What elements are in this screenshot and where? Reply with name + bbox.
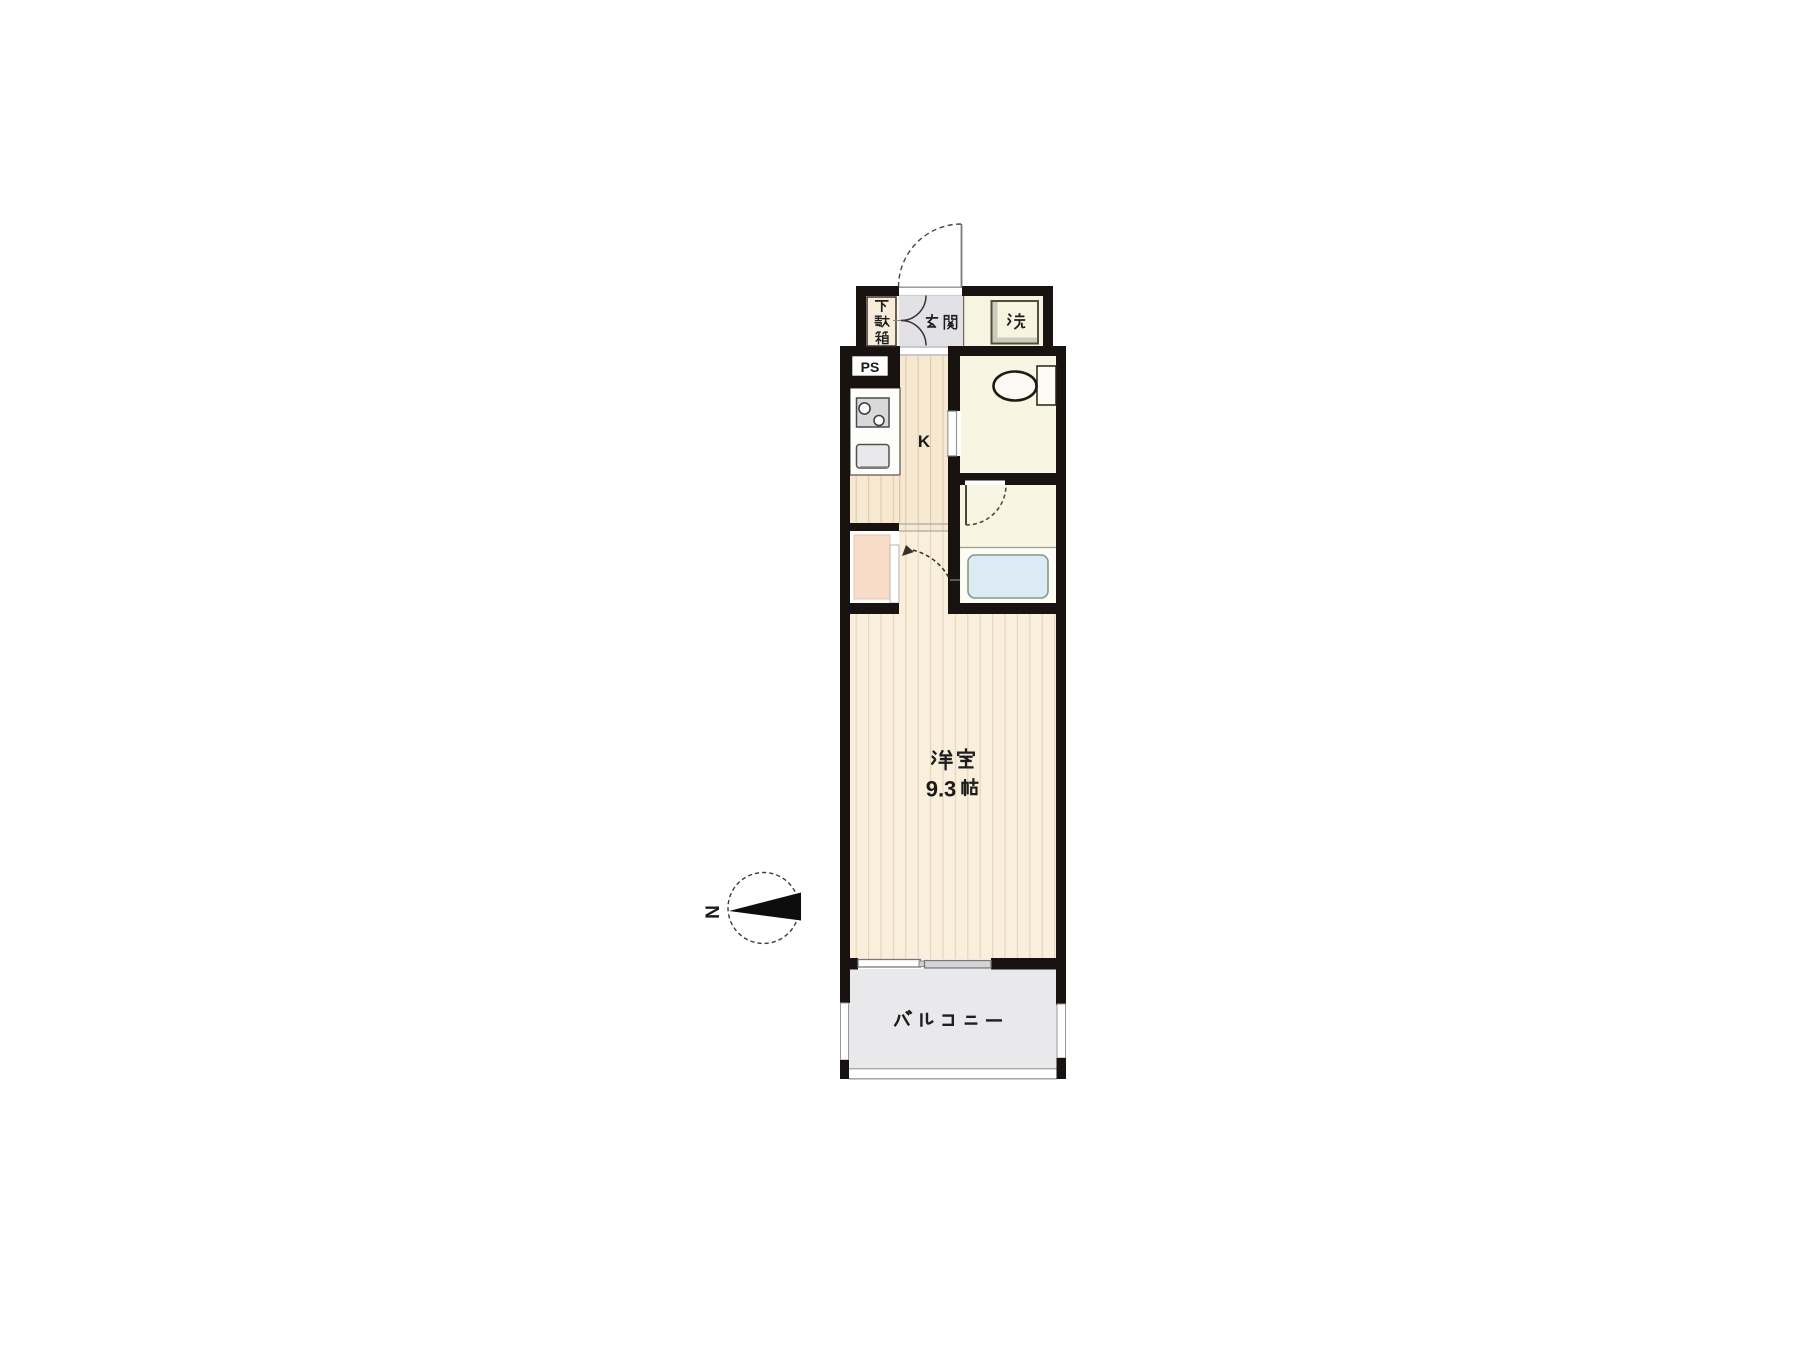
svg-text:K: K bbox=[918, 432, 931, 451]
svg-text:PS: PS bbox=[861, 359, 880, 375]
svg-text:9.3: 9.3 bbox=[926, 777, 957, 802]
svg-text:N: N bbox=[703, 905, 724, 919]
